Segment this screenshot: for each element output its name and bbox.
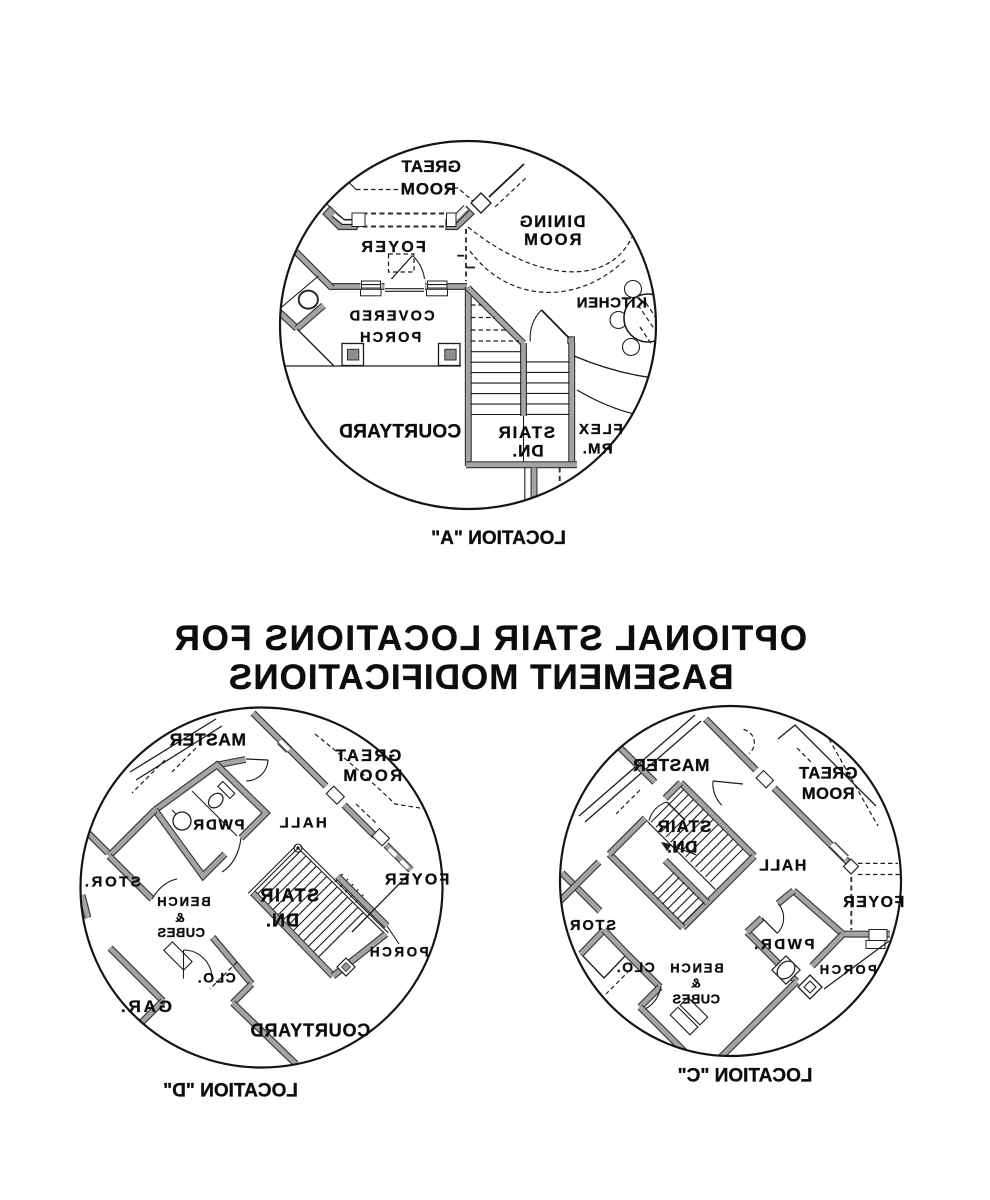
svg-text:HALL: HALL (277, 815, 327, 832)
svg-text:COURTYARD: COURTYARD (339, 422, 461, 443)
svg-text:DN.: DN. (265, 911, 299, 931)
svg-text:COVERED: COVERED (347, 309, 434, 325)
svg-text:DN.: DN. (667, 838, 698, 857)
svg-text:MASTER: MASTER (633, 755, 710, 775)
svg-text:&: & (691, 976, 700, 991)
svg-text:CLO.: CLO. (196, 970, 235, 986)
svg-text:CUBES: CUBES (157, 925, 205, 940)
svg-text:CUBES: CUBES (672, 992, 720, 1007)
svg-text:GREAT: GREAT (334, 747, 402, 765)
svg-text:STOR: STOR (568, 918, 616, 934)
svg-text:RM.: RM. (581, 441, 612, 458)
svg-text:FOYER: FOYER (359, 239, 426, 256)
svg-text:KITCHEN: KITCHEN (576, 295, 647, 312)
svg-text:HALL: HALL (758, 858, 807, 875)
svg-text:CLO.: CLO. (615, 959, 654, 975)
svg-text:PORCH: PORCH (367, 945, 428, 960)
svg-text:OPTIONAL STAIR LOCATIONS FOR: OPTIONAL STAIR LOCATIONS FOR (173, 619, 807, 658)
svg-text:BASEMENT MODIFICATIONS: BASEMENT MODIFICATIONS (228, 658, 734, 697)
svg-text:STAIR: STAIR (259, 886, 319, 906)
svg-text:ROOM: ROOM (522, 231, 581, 249)
svg-text:PWDR: PWDR (191, 817, 244, 834)
svg-text:LOCATION "A": LOCATION "A" (431, 528, 566, 549)
svg-text:MASTER: MASTER (169, 730, 246, 750)
svg-text:STAIR: STAIR (657, 817, 712, 836)
svg-text:DN.: DN. (511, 442, 543, 461)
svg-text:STAIR: STAIR (497, 423, 555, 442)
svg-text:FOYER: FOYER (383, 872, 450, 889)
svg-text:GREAT: GREAT (401, 157, 461, 176)
svg-text:DINING: DINING (518, 213, 585, 231)
svg-text:PORCH: PORCH (817, 962, 876, 977)
svg-text:BENCH: BENCH (155, 894, 210, 909)
svg-text:PORCH: PORCH (358, 330, 421, 346)
svg-text:COURTYARD: COURTYARD (250, 1021, 371, 1041)
svg-text:LOCATION "D": LOCATION "D" (163, 1081, 298, 1102)
svg-text:FLEX: FLEX (577, 421, 623, 438)
svg-text:ROOM: ROOM (341, 767, 402, 785)
svg-text:GAR.: GAR. (118, 997, 172, 1016)
svg-text:ROOM: ROOM (400, 180, 456, 199)
svg-text:&: & (175, 910, 184, 925)
svg-text:FOYER: FOYER (842, 894, 905, 911)
svg-text:BENCH: BENCH (668, 961, 723, 976)
svg-text:LOCATION "C": LOCATION "C" (678, 1066, 813, 1087)
svg-text:GREAT: GREAT (798, 765, 857, 783)
svg-text:PWDR.: PWDR. (752, 936, 815, 953)
svg-text:ROOM: ROOM (801, 785, 854, 803)
svg-text:STOR.: STOR. (82, 874, 141, 891)
